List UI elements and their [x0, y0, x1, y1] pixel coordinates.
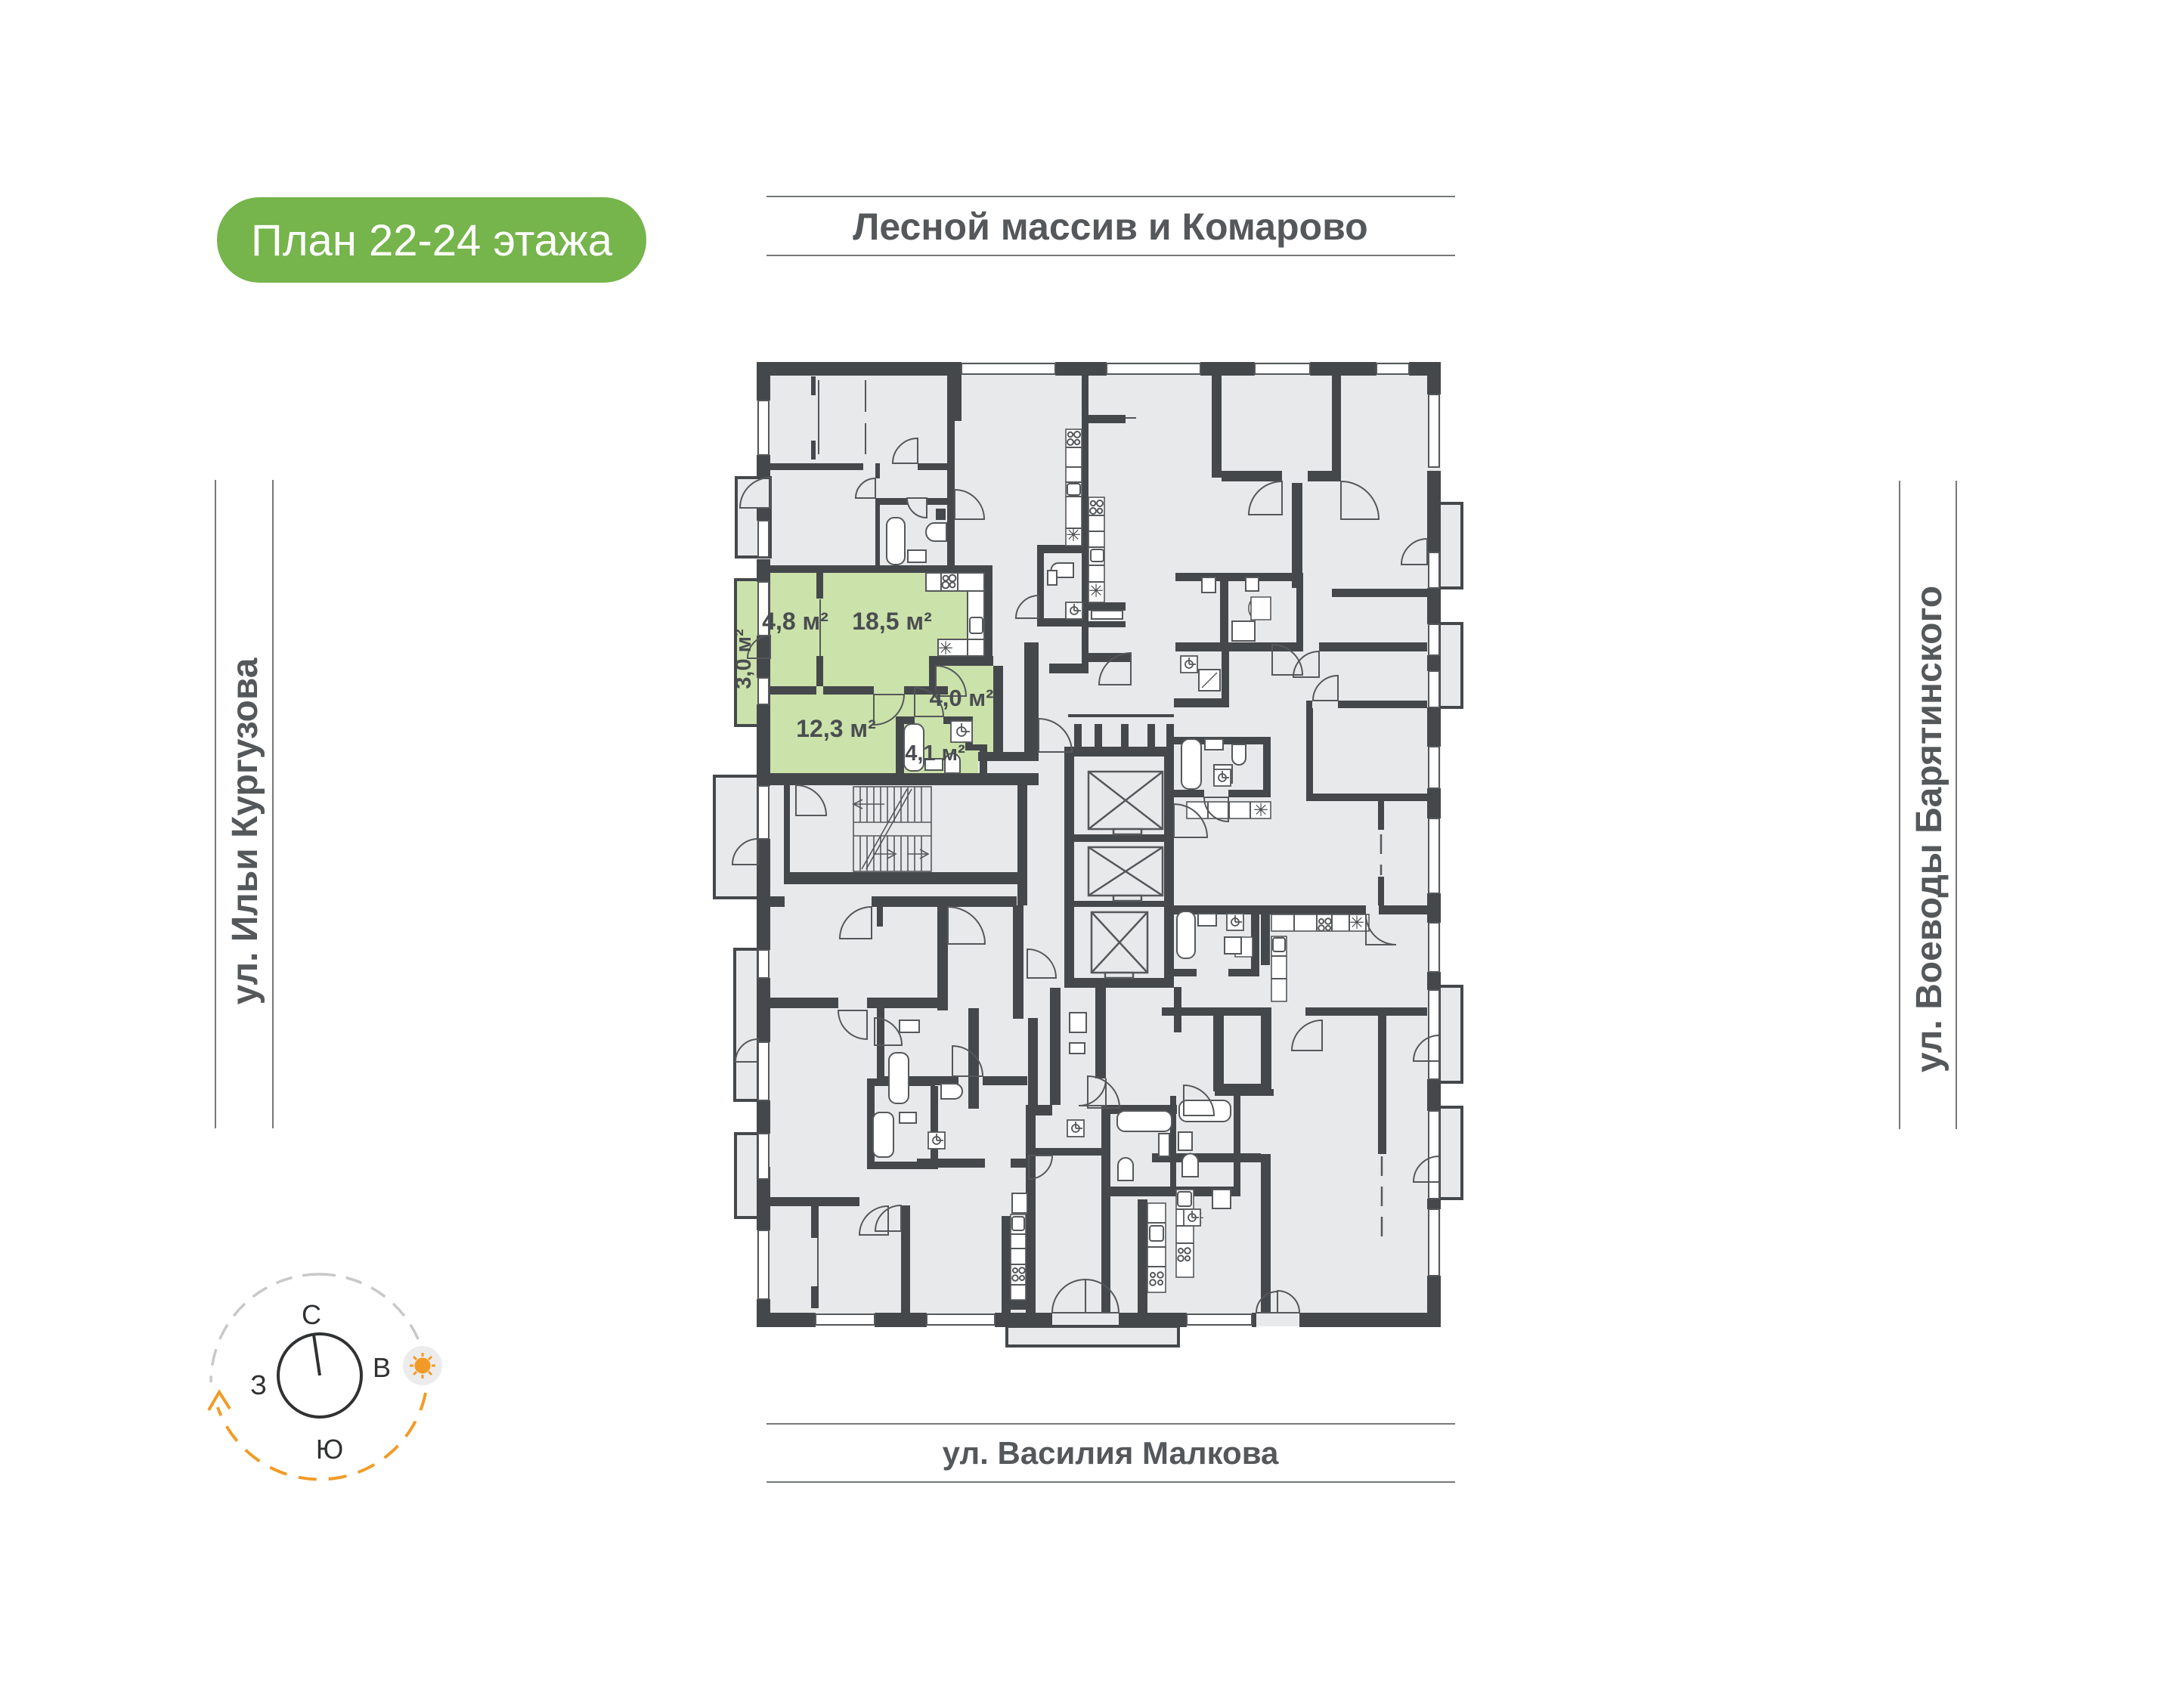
- svg-text:С: С: [302, 1299, 321, 1330]
- svg-text:В: В: [373, 1352, 391, 1383]
- svg-text:ул. Воеводы Барятинского: ул. Воеводы Барятинского: [1909, 586, 1949, 1072]
- svg-text:ул. Василия Малкова: ул. Василия Малкова: [943, 1435, 1279, 1471]
- svg-text:Лесной массив и Комарово: Лесной массив и Комарово: [853, 206, 1367, 248]
- svg-text:З: З: [250, 1369, 267, 1400]
- svg-text:Ю: Ю: [316, 1434, 343, 1465]
- svg-text:✳: ✳: [1253, 800, 1268, 821]
- svg-text:✳: ✳: [1066, 525, 1081, 546]
- svg-text:ул. Ильи Кургузова: ул. Ильи Кургузова: [225, 658, 265, 1004]
- svg-text:12,3 м²: 12,3 м²: [796, 715, 876, 742]
- svg-text:18,5 м²: 18,5 м²: [852, 608, 932, 635]
- svg-text:4,1 м²: 4,1 м²: [905, 741, 965, 766]
- svg-text:3,0 м²: 3,0 м²: [732, 629, 756, 689]
- svg-text:✳: ✳: [1088, 581, 1104, 602]
- svg-text:План 22-24 этажа: План 22-24 этажа: [251, 216, 613, 265]
- svg-text:✳: ✳: [1349, 913, 1364, 933]
- svg-text:✳: ✳: [938, 639, 953, 659]
- svg-text:4,8 м²: 4,8 м²: [762, 608, 828, 635]
- svg-text:4,0 м²: 4,0 м²: [930, 685, 994, 711]
